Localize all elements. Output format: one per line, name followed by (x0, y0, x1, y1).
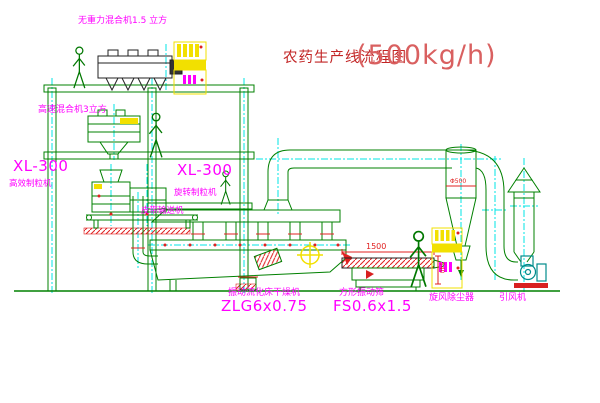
label-granulator-left-name: 高效制粒机 (9, 180, 52, 189)
fluid-bed-dryer (150, 210, 352, 291)
centerlines (52, 44, 538, 294)
page-title-capacity: (500kg/h) (356, 42, 497, 69)
diagram-canvas: 无重力混合机1.5 立方 农药生产线流程图 (500kg/h) 高速混合机3立方… (0, 0, 600, 403)
label-gravity-free-mixer: 无重力混合机1.5 立方 (78, 17, 167, 26)
label-screen-model: FS0.6x1.5 (333, 299, 412, 314)
induced-draft-fan (514, 256, 548, 288)
label-belt-conveyor: 皮带输送机 (141, 207, 184, 216)
label-granulator-center-model: XL-300 (177, 163, 232, 178)
control-cabinet-right (432, 228, 462, 288)
label-dryer-model: ZLG6x0.75 (221, 299, 308, 314)
label-fan: 引风机 (499, 294, 526, 303)
label-granulator-left-model: XL-300 (13, 159, 68, 174)
label-high-speed-mixer: 高速混合机3立方 (38, 106, 107, 115)
worker-top-floor (73, 47, 85, 88)
label-granulator-center-name: 旋转制粒机 (174, 189, 217, 198)
label-cyclone: 旋风除尘器 (429, 294, 474, 303)
dim-cyclone-diameter: Φ500 (450, 179, 466, 185)
gravity-free-mixer (98, 50, 182, 90)
dim-screen-length: 1500 (366, 243, 386, 251)
vibrating-screen (342, 249, 444, 291)
control-cabinet-top (174, 42, 206, 94)
dim-screen-height: 540 (438, 262, 444, 273)
